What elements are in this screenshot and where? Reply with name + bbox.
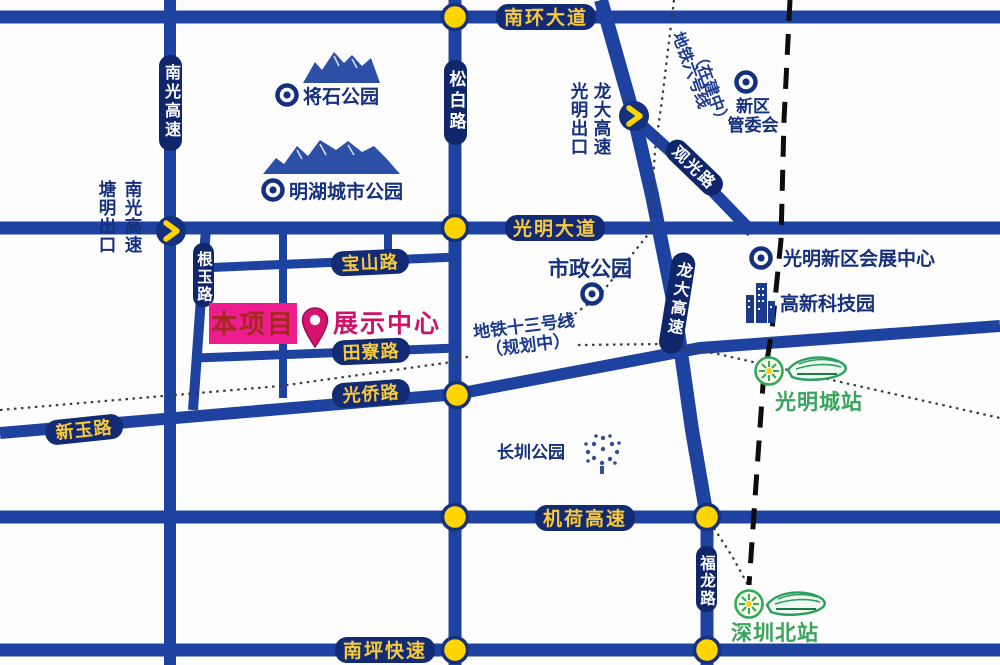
buildings-icon xyxy=(746,283,775,323)
label-nanhuan-avenue: 南环大道 xyxy=(496,4,596,30)
landmark-target-icon xyxy=(737,73,756,92)
train-icon xyxy=(788,357,846,379)
road-name: 光明大道 xyxy=(512,217,597,240)
train-icon xyxy=(767,592,825,614)
road-name: 南环大道 xyxy=(504,6,588,29)
label-baoshan-road: 宝山路 xyxy=(330,248,409,276)
node-guangqiao-songbai xyxy=(445,383,470,408)
park-name: 市政公园 xyxy=(548,257,632,281)
exit-text-guangming: 光明出口 龙大高速 xyxy=(569,81,612,156)
mountain-icon xyxy=(303,52,380,83)
exit-name: 光明出口 xyxy=(569,81,589,156)
road-name: 松白路 xyxy=(447,69,467,133)
project-site-marker: 本项目 xyxy=(209,303,297,344)
park-target-icon xyxy=(278,86,297,105)
expressway-name: 龙大高速 xyxy=(592,81,612,156)
metro-line13-label: 地铁十三号线 （规划中） xyxy=(472,310,576,360)
node-jihe-songbai xyxy=(443,505,468,530)
park-jiangshi: 将石公园 xyxy=(278,52,381,108)
node-nanping-fulong xyxy=(695,638,720,663)
station-name: 光明城站 xyxy=(774,390,863,414)
park-name: 将石公园 xyxy=(303,85,379,108)
landmark-hightech-park: 高新科技园 xyxy=(746,283,875,323)
landmark-name-line1: 新区 xyxy=(736,96,770,116)
landmark-district-committee: 新区 管委会 xyxy=(728,73,779,136)
park-name: 长圳公园 xyxy=(497,442,565,462)
sunburst-icon xyxy=(736,591,763,618)
sunburst-icon xyxy=(756,358,783,385)
road-name: 观光路 xyxy=(668,142,720,193)
road-name: 机荷高速 xyxy=(543,507,627,530)
road-tianliao-road xyxy=(196,348,457,358)
label-guangming-avenue: 光明大道 xyxy=(505,215,605,241)
label-guanguang-road: 观光路 xyxy=(661,135,727,200)
landmark-name: 光明新区会展中心 xyxy=(782,247,935,270)
node-nanhuan-songbai xyxy=(443,5,468,30)
road-name: 田寮路 xyxy=(342,340,400,363)
label-genyu-road: 根玉路 xyxy=(193,243,214,307)
exit-name: 塘明出口 xyxy=(97,179,117,254)
landmark-target-icon xyxy=(752,249,771,268)
label-jihe-expressway: 机荷高速 xyxy=(535,505,635,531)
mountain-icon xyxy=(263,140,400,174)
station-guangmingcheng: 光明城站 xyxy=(756,357,864,414)
park-target-icon xyxy=(264,181,283,200)
park-name: 明湖城市公园 xyxy=(289,180,403,203)
road-name: 宝山路 xyxy=(341,251,399,274)
label-songbai-road: 松白路 xyxy=(444,60,467,145)
label-nanguang-expressway: 南光高速 xyxy=(159,55,182,151)
tree-icon xyxy=(584,434,621,474)
project-site-label: 本项目 xyxy=(211,309,295,339)
station-shenzhenbei: 深圳北站 xyxy=(731,591,825,646)
road-baoshan-road xyxy=(200,257,457,268)
transit-lines xyxy=(0,0,1000,585)
node-guangming-songbai xyxy=(443,216,468,241)
label-xinyu-road: 新玉路 xyxy=(44,413,124,446)
road-name: 光侨路 xyxy=(341,381,400,406)
label-nanping-expressway: 南坪快速 xyxy=(335,637,435,663)
location-map: 南环大道 光明大道 机荷高速 南坪快速 宝山路 田寮路 光侨路 新玉路 xyxy=(0,0,1000,665)
exit-chevron-tangming xyxy=(156,216,186,246)
node-nanping-songbai xyxy=(443,638,468,663)
metro-line6-label: 地铁六号线 （在建中） xyxy=(669,29,734,129)
exit-chevron-guangming xyxy=(619,101,649,131)
station-name: 深圳北站 xyxy=(731,621,819,645)
park-municipal: 市政公园 xyxy=(548,257,632,304)
landmark-name: 高新科技园 xyxy=(780,292,875,315)
park-target-icon xyxy=(583,285,602,304)
road-name: 根玉路 xyxy=(195,250,213,304)
location-pin-icon xyxy=(303,308,328,347)
landmark-name-line2: 管委会 xyxy=(728,115,779,135)
node-jihe-fulong xyxy=(695,505,720,530)
expressway-name: 南光高速 xyxy=(123,179,143,254)
exit-text-tangming: 塘明出口 南光高速 xyxy=(97,179,143,254)
exhibition-center-label: 展示中心 xyxy=(333,310,441,338)
park-changzhen: 长圳公园 xyxy=(497,434,621,474)
road-name: 南坪快速 xyxy=(343,639,427,662)
park-minghu: 明湖城市公园 xyxy=(263,140,403,203)
label-fulong-road: 福龙路 xyxy=(696,546,717,612)
map-canvas: 南环大道 光明大道 机荷高速 南坪快速 宝山路 田寮路 光侨路 新玉路 xyxy=(0,0,1000,665)
label-tianliao-road: 田寮路 xyxy=(331,337,410,365)
road-name: 福龙路 xyxy=(698,554,717,608)
